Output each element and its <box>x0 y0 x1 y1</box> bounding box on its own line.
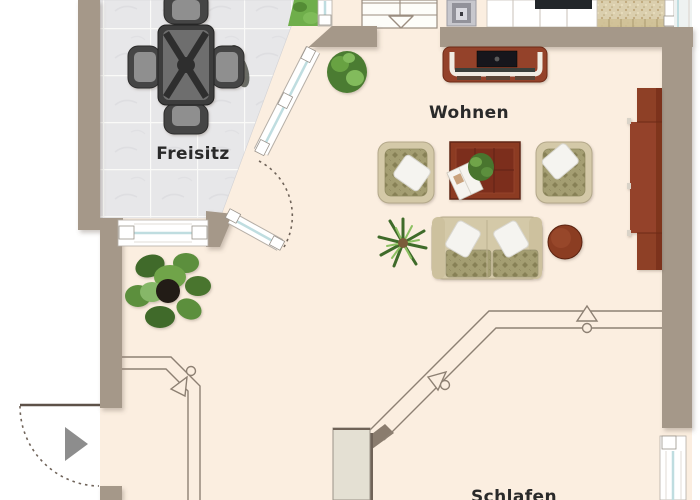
room-label-wohnen: Wohnen <box>429 103 509 123</box>
patio-chair <box>164 0 208 24</box>
kitchen-counter <box>487 0 597 27</box>
coffee-table <box>447 142 520 200</box>
cooktop <box>535 0 592 9</box>
window-top-vertical <box>318 0 332 26</box>
patio-chair <box>212 46 244 88</box>
patio-chair <box>128 46 160 88</box>
floorplan: Freisitz Wohnen Schlafen <box>0 0 700 500</box>
wall-left-lower <box>100 486 122 500</box>
stone-floor <box>597 0 665 27</box>
wardrobe <box>333 428 370 500</box>
fireplace <box>447 0 476 26</box>
patio-table <box>158 25 214 105</box>
side-table <box>548 225 582 259</box>
bush-plant <box>327 51 367 93</box>
entrance-arrow-icon <box>65 427 88 461</box>
window-bedroom-right <box>660 436 686 500</box>
tv-sideboard <box>443 47 547 82</box>
staircase <box>362 0 437 28</box>
sofa <box>432 217 542 279</box>
window-terrace-bottom <box>118 220 208 246</box>
patio-chair <box>164 104 208 134</box>
wall-left <box>100 226 122 408</box>
armchair <box>536 142 592 203</box>
armchair <box>378 142 434 203</box>
wall-top <box>440 27 693 47</box>
wall-right <box>662 47 692 428</box>
wall-terrace-left <box>78 0 100 230</box>
window-top-right <box>664 0 692 27</box>
floorplan-canvas <box>0 0 700 500</box>
door-swing-arc <box>20 406 99 486</box>
room-label-freisitz: Freisitz <box>156 144 229 164</box>
entrance-door <box>20 405 100 486</box>
room-label-schlafen: Schlafen <box>471 487 557 500</box>
table-plant <box>468 153 494 181</box>
